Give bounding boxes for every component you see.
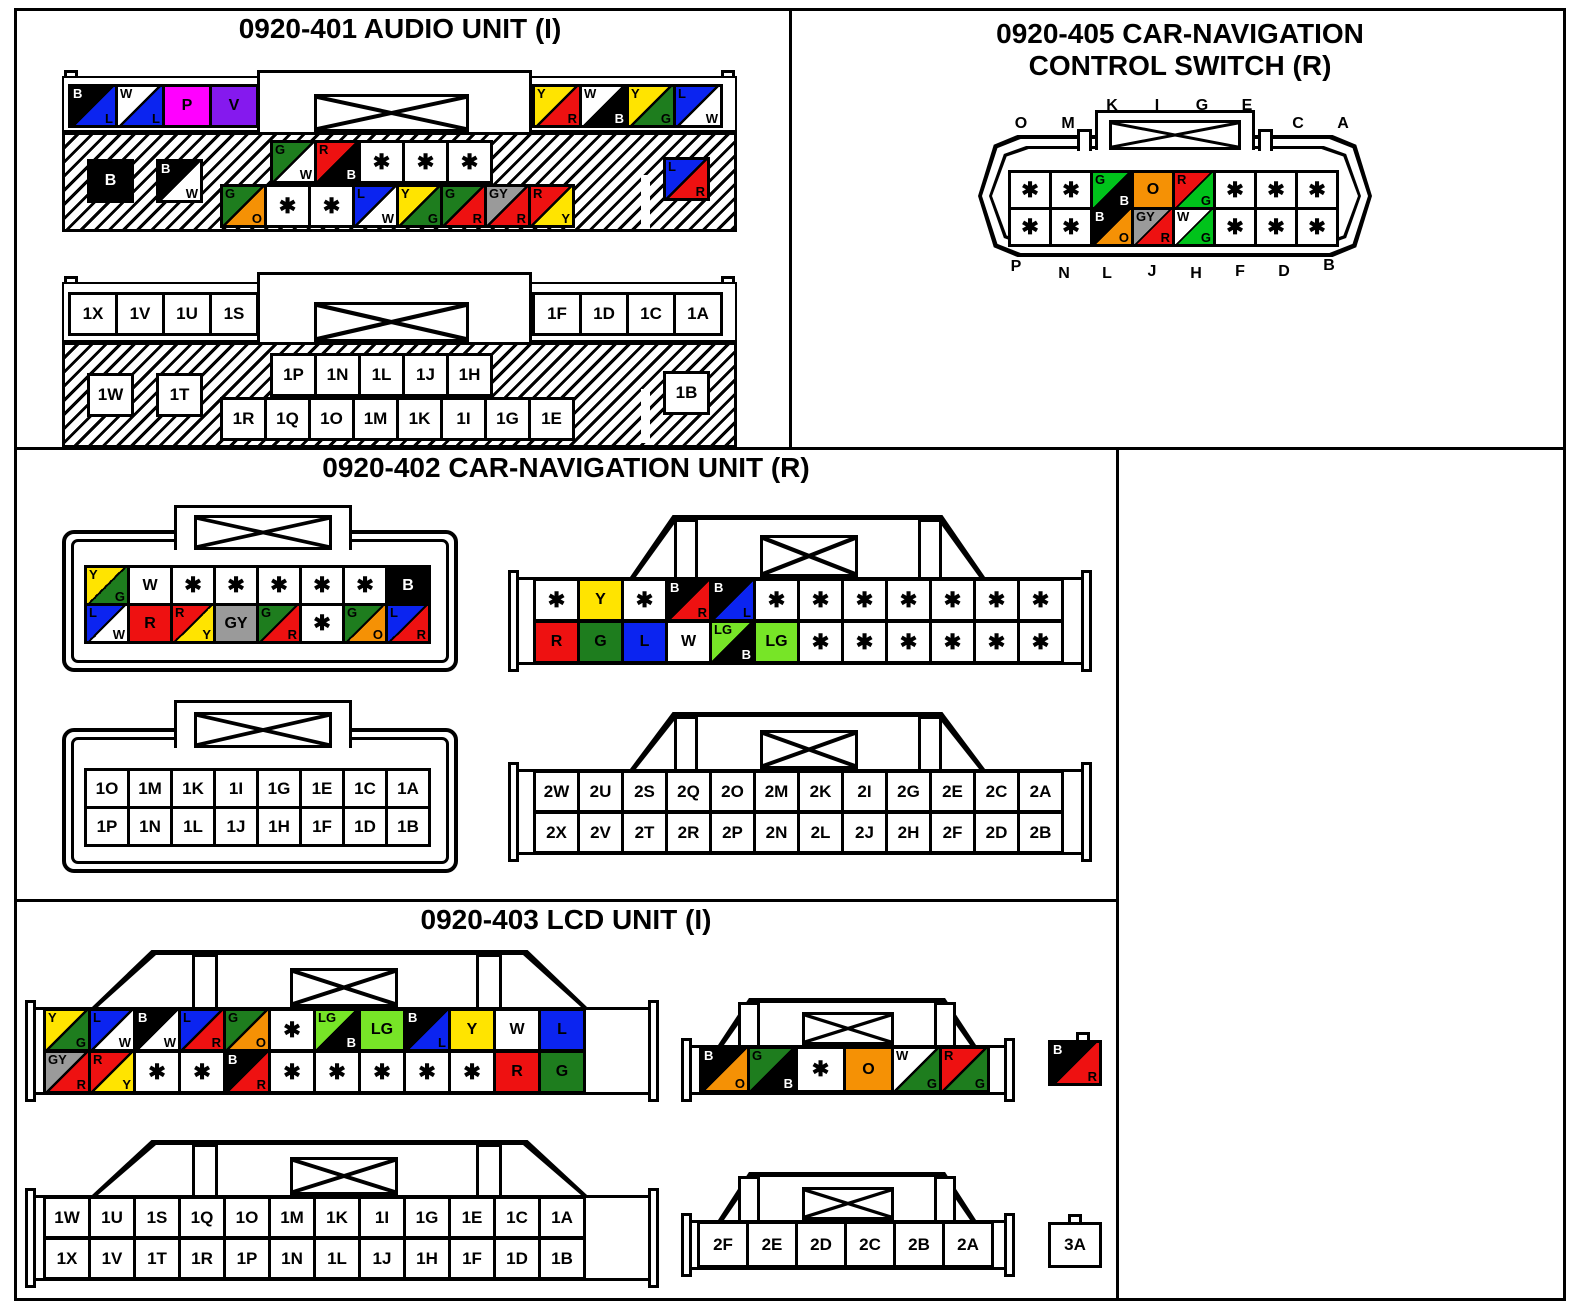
connector-endcap — [1004, 1038, 1015, 1102]
lcd-small-pin-connector: 2F2E2D2C2B2A — [688, 1172, 1008, 1272]
wire-color-code: LG — [714, 622, 732, 637]
wire-cell-g-r: GR — [256, 603, 302, 644]
pin-cell-1w: 1W — [43, 1196, 91, 1239]
wire-color-code: G — [1201, 230, 1211, 245]
wire-color-code: G — [225, 186, 235, 201]
spacer-slot — [641, 175, 650, 229]
carnav-right-pin-connector: 2W2U2S2Q2O2M2K2I2G2E2C2A 2X2V2T2R2P2N2L2… — [515, 712, 1085, 862]
wire-cell-b-r: BR — [223, 1050, 271, 1094]
wire-color-code: G — [428, 211, 438, 226]
wire-row: YGW✱✱✱✱✱B — [84, 565, 431, 606]
wire-color-code: GY — [48, 1052, 67, 1067]
wire-cell-b-w: BW — [133, 1008, 181, 1052]
pin-cell-2h: 2H — [885, 811, 932, 854]
pin-cell-1v: 1V — [115, 292, 165, 336]
wire-color-code: W — [164, 1035, 176, 1050]
panel-title-lcd-unit: 0920-403 LCD UNIT (I) — [166, 904, 966, 936]
wire-color-code: L — [678, 86, 686, 101]
pin-row: 1O1M1K1I1G1E1C1A — [84, 768, 431, 809]
wire-cell-w-g2: WG — [1172, 207, 1216, 247]
pin-cell-2b: 2B — [1017, 811, 1064, 854]
wire-cell-g-o: GO — [220, 184, 267, 228]
pin-cell-2l: 2L — [797, 811, 844, 854]
wire-cell-y-g: YG — [396, 184, 443, 228]
wire-cell-unused: ✱ — [358, 1050, 406, 1094]
wire-color-code: R — [93, 1052, 102, 1067]
wire-cell-w-l: WL — [115, 84, 165, 128]
wire-cell-unused: ✱ — [213, 565, 259, 606]
panel-title-control-switch-line2: CONTROL SWITCH (R) — [880, 50, 1480, 82]
pin-cell-2c: 2C — [973, 770, 1020, 813]
pin-cell-1x: 1X — [43, 1237, 91, 1280]
pin-letter-l: L — [1096, 265, 1118, 283]
pin-letter-j: J — [1141, 263, 1163, 281]
pin-cell-1s: 1S — [133, 1196, 181, 1239]
wire-cell-unused: ✱ — [1008, 170, 1052, 210]
wire-color-code: R — [696, 184, 705, 199]
wire-color-code: R — [212, 1035, 221, 1050]
pin-cell-1h: 1H — [446, 353, 493, 397]
wire-row: BOGB✱OWGRG — [699, 1046, 990, 1093]
pin-cell-1b: 1B — [538, 1237, 586, 1280]
wire-color-code: G — [115, 589, 125, 604]
wire-color-code: R — [175, 605, 184, 620]
connector-bridge — [630, 515, 985, 577]
wire-cell-y-g: YG — [43, 1008, 91, 1052]
wire-cell-o: O — [1131, 170, 1175, 210]
wire-color-code: R — [319, 142, 328, 157]
wire-color-code: W — [113, 627, 125, 642]
wire-color-code: G — [347, 605, 357, 620]
pin-cell-1j: 1J — [358, 1237, 406, 1280]
wire-cell-unused: ✱ — [1295, 170, 1339, 210]
wire-cell-b-o: BO — [1090, 207, 1134, 247]
wire-cell-r-y: RY — [528, 184, 575, 228]
connector-post — [192, 1144, 218, 1195]
pin-row: 2W2U2S2Q2O2M2K2I2G2E2C2A — [533, 770, 1064, 813]
keyway-cross-icon — [314, 94, 469, 132]
wire-row: GO✱✱LWYGGRGYRRY — [220, 184, 575, 228]
pin-cell-1e: 1E — [299, 768, 345, 809]
wire-color-code: L — [89, 605, 97, 620]
wire-cell-g-o: GO — [342, 603, 388, 644]
wire-color-code: Y — [202, 627, 211, 642]
connector-bridge — [92, 950, 587, 1007]
pin-cell-2e: 2E — [746, 1221, 798, 1268]
wire-color-code: B — [1120, 193, 1129, 208]
wire-cell-w: W — [665, 620, 712, 664]
wire-cell-y: Y — [577, 578, 624, 622]
pin-row: 1X1V1T1R1P1N1L1J1H1F1D1B — [43, 1237, 586, 1280]
wire-color-code: G — [228, 1010, 238, 1025]
keyway-cross-icon — [760, 730, 858, 769]
wire-color-code: B — [138, 1010, 147, 1025]
wire-cell-unused: ✱ — [446, 140, 493, 184]
pin-cell-1r: 1R — [220, 397, 267, 441]
wire-color-code: O — [1119, 230, 1129, 245]
wire-cell-unused: ✱ — [1295, 207, 1339, 247]
wire-color-code: R — [944, 1048, 953, 1063]
wire-row: RGLWLGBLG✱✱✱✱✱✱ — [533, 620, 1064, 664]
hatch-area: 1W1T 1P1N1L1J1H 1R1Q1O1M1K1I1G1E 1B — [62, 342, 737, 448]
wire-cell-b-l: BL — [68, 84, 118, 128]
wire-cell-r-g2: RG — [1172, 170, 1216, 210]
pin-cell-2n: 2N — [753, 811, 800, 854]
wire-color-code: B — [742, 647, 751, 662]
wire-cell-unused: ✱ — [402, 140, 449, 184]
pin-cell-2d: 2D — [973, 811, 1020, 854]
wire-color-code: R — [568, 111, 577, 126]
connector-post — [738, 1002, 760, 1045]
wire-color-code: G — [1201, 193, 1211, 208]
pin-cell-1w: 1W — [87, 373, 134, 417]
wire-color-code: B — [1053, 1042, 1062, 1057]
wire-cell-lg-b: LGB — [313, 1008, 361, 1052]
pin-cell-1c: 1C — [342, 768, 388, 809]
wire-cell-r: R — [533, 620, 580, 664]
wire-cell-unused: ✱ — [753, 578, 800, 622]
wire-cell-y-g: YG — [626, 84, 676, 128]
pin-cell-1k: 1K — [396, 397, 443, 441]
connector-post — [1077, 129, 1092, 151]
wire-color-code: R — [417, 627, 426, 642]
wire-color-code: Y — [401, 186, 410, 201]
panel-title-audio-unit: 0920-401 AUDIO UNIT (I) — [90, 13, 710, 45]
wire-color-code: G — [275, 142, 285, 157]
wire-color-code: O — [256, 1035, 266, 1050]
pin-cell-2f: 2F — [697, 1221, 749, 1268]
wire-color-code: R — [288, 627, 297, 642]
pin-cell-1r: 1R — [178, 1237, 226, 1280]
wire-color-code: R — [1161, 230, 1170, 245]
connector-post — [918, 716, 942, 769]
connector-bridge — [630, 712, 985, 769]
wire-cell-l-w: LW — [673, 84, 723, 128]
keyway-cross-icon — [290, 968, 398, 1007]
wire-color-code: L — [668, 159, 676, 174]
wire-cell-b: B — [385, 565, 431, 606]
wire-cell-g-b: GB — [747, 1046, 798, 1093]
wire-color-code: G — [76, 1035, 86, 1050]
keyway-cross-icon — [760, 535, 858, 577]
wire-cell-l-w: LW — [88, 1008, 136, 1052]
wire-row: LWRRYGYGR✱GOLR — [84, 603, 431, 644]
wire-color-code: B — [714, 580, 723, 595]
lcd-tiny-pin-connector: 3A — [1048, 1214, 1102, 1270]
pin-cell-1f: 1F — [299, 806, 345, 847]
pin-cell-1t: 1T — [133, 1237, 181, 1280]
wire-cell-unused: ✱ — [256, 565, 302, 606]
wire-color-code: G — [752, 1048, 762, 1063]
wire-cell-gy-r: GYR — [484, 184, 531, 228]
pin-cell-1c: 1C — [493, 1196, 541, 1239]
pin-cell-1t: 1T — [156, 373, 203, 417]
keyway-cross-icon — [1109, 120, 1241, 150]
wire-cell-unused: ✱ — [448, 1050, 496, 1094]
wire-cell-unused: ✱ — [841, 620, 888, 664]
wire-cell-unused: ✱ — [1008, 207, 1052, 247]
pin-cell-1i: 1I — [440, 397, 487, 441]
pin-letter-f: F — [1229, 263, 1251, 281]
wire-cell-unused: ✱ — [797, 620, 844, 664]
connector-post — [192, 954, 218, 1007]
pin-cell-1b: 1B — [663, 371, 710, 415]
wire-color-code: G — [261, 605, 271, 620]
pin-cell-1x: 1X — [68, 292, 118, 336]
pin-cell-2d: 2D — [795, 1221, 847, 1268]
panel-title-carnav-unit: 0920-402 CAR-NAVIGATION UNIT (R) — [166, 452, 966, 484]
wire-cell-unused: ✱ — [299, 603, 345, 644]
wire-color-code: Y — [48, 1010, 57, 1025]
wire-cell-o: O — [843, 1046, 894, 1093]
divider-carnav-lcd — [14, 899, 1119, 902]
connector-post — [738, 1176, 760, 1220]
pin-cell-1o: 1O — [84, 768, 130, 809]
audio-unit-wire-connector: BLWLPV YRWBYGLW BBW GWRB✱✱✱ GO✱✱LWYGGRGY… — [62, 70, 737, 235]
connector-endcap — [1004, 1213, 1015, 1277]
connector-bridge — [718, 998, 976, 1045]
pin-letter-o: O — [1010, 115, 1032, 133]
pin-cell-1h: 1H — [256, 806, 302, 847]
pin-cell-1u: 1U — [162, 292, 212, 336]
wire-color-code: W — [382, 211, 394, 226]
wire-cell-unused: ✱ — [268, 1008, 316, 1052]
wire-cell-lg: LG — [753, 620, 800, 664]
wire-color-code: L — [438, 1035, 446, 1050]
wire-cell-unused: ✱ — [1017, 578, 1064, 622]
wiring-diagram-sheet: 0920-401 AUDIO UNIT (I) BLWLPV YRWBYGLW … — [0, 0, 1580, 1314]
wire-cell-unused: ✱ — [973, 578, 1020, 622]
connector-post — [476, 1144, 502, 1195]
pin-cell-2b: 2B — [893, 1221, 945, 1268]
wire-color-code: O — [735, 1076, 745, 1091]
wire-color-code: B — [670, 580, 679, 595]
pin-row: 1F1D1C1A — [532, 292, 723, 336]
wire-color-code: Y — [122, 1077, 131, 1092]
wire-color-code: L — [105, 111, 113, 126]
pin-cell-1e: 1E — [528, 397, 575, 441]
pin-row: 1P1N1L1J1H1F1D1B — [84, 806, 431, 847]
pin-cell-3a: 3A — [1048, 1222, 1102, 1268]
pin-cell-1a: 1A — [538, 1196, 586, 1239]
wire-cell-unused: ✱ — [1017, 620, 1064, 664]
connector-body: 2F2E2D2C2B2A — [688, 1220, 1008, 1270]
wire-color-code: B — [408, 1010, 417, 1025]
wire-cell-w-g: WG — [891, 1046, 942, 1093]
connector-body: ✱Y✱BRBL✱✱✱✱✱✱✱ RGLWLGBLG✱✱✱✱✱✱ — [515, 577, 1085, 665]
wire-cell-p: P — [162, 84, 212, 128]
wire-color-code: W — [584, 86, 596, 101]
pin-cell-1a: 1A — [673, 292, 723, 336]
wire-color-code: Y — [631, 86, 640, 101]
wire-cell-unused: ✱ — [170, 565, 216, 606]
wire-cell-unused: ✱ — [885, 620, 932, 664]
keyway-cross-icon — [194, 712, 332, 748]
pin-cell-2a: 2A — [942, 1221, 994, 1268]
wire-color-code: R — [77, 1077, 86, 1092]
wire-cell-g-r: GR — [440, 184, 487, 228]
wire-cell-g-o: GO — [223, 1008, 271, 1052]
wire-color-code: LG — [318, 1010, 336, 1025]
pin-cell-1g: 1G — [256, 768, 302, 809]
carnav-right-wire-connector: ✱Y✱BRBL✱✱✱✱✱✱✱ RGLWLGBLG✱✱✱✱✱✱ — [515, 515, 1085, 667]
wire-color-code: GY — [1136, 209, 1155, 224]
wire-cell-r-y: RY — [170, 603, 216, 644]
wire-cell-l-w: LW — [84, 603, 130, 644]
pin-row: 1X1V1U1S — [68, 292, 259, 336]
pin-cell-1j: 1J — [213, 806, 259, 847]
wire-color-code: L — [357, 186, 365, 201]
pin-cell-1p: 1P — [270, 353, 317, 397]
connector-post — [918, 519, 942, 577]
wire-cell-l-w: LW — [352, 184, 399, 228]
wire-cell-b-l: BL — [709, 578, 756, 622]
wire-cell-unused: ✱ — [313, 1050, 361, 1094]
wire-cell-g: G — [538, 1050, 586, 1094]
keyway-cross-icon — [194, 515, 332, 550]
pin-cell-2p: 2P — [709, 811, 756, 854]
pin-letter-a: A — [1332, 115, 1354, 133]
wire-row: ✱✱BOGYRWG✱✱✱ — [1008, 207, 1339, 247]
wire-cell-unused: ✱ — [533, 578, 580, 622]
pin-cell-1g: 1G — [484, 397, 531, 441]
wire-cell-b-r: BR — [665, 578, 712, 622]
carnav-left-pin-connector: 1O1M1K1I1G1E1C1A 1P1N1L1J1H1F1D1B — [62, 700, 458, 875]
pin-cell-1l: 1L — [358, 353, 405, 397]
hatch-area: BBW GWRB✱✱✱ GO✱✱LWYGGRGYRRY LR — [62, 132, 737, 232]
pin-cell-1u: 1U — [88, 1196, 136, 1239]
pin-cell-1o: 1O — [223, 1196, 271, 1239]
pin-cell-2e: 2E — [929, 770, 976, 813]
wire-cell-unused: ✱ — [1254, 207, 1298, 247]
wire-color-code: B — [228, 1052, 237, 1067]
wire-cell-b: B — [87, 159, 134, 203]
wire-cell-b-r: BR — [1048, 1040, 1102, 1086]
wire-cell-w: W — [127, 565, 173, 606]
wire-color-code: R — [1088, 1069, 1097, 1084]
wire-row: BBW — [87, 159, 203, 203]
wire-color-code: L — [183, 1010, 191, 1025]
wire-cell-gy-r: GYR — [1131, 207, 1175, 247]
wire-color-code: B — [704, 1048, 713, 1063]
wire-cell-g: G — [577, 620, 624, 664]
audio-unit-pin-connector: 1X1V1U1S 1F1D1C1A 1W1T 1P1N1L1J1H 1R1Q1O… — [62, 272, 737, 454]
wire-color-code: W — [706, 111, 718, 126]
connector-endcap — [648, 1000, 659, 1102]
wire-color-code: W — [896, 1048, 908, 1063]
wire-cell-g2-b: GB — [1090, 170, 1134, 210]
pin-cell-2q: 2Q — [665, 770, 712, 813]
pin-letter-c: C — [1287, 115, 1309, 133]
connector-body: YGLWBWLRGO✱LGBLGBLYWL GYRRY✱✱BR✱✱✱✱✱RG — [32, 1007, 652, 1095]
pin-row: 1W1T — [87, 373, 203, 417]
pin-cell-2j: 2J — [841, 811, 888, 854]
keyway-cross-icon — [802, 1187, 894, 1220]
wire-cell-unused: ✱ — [621, 578, 668, 622]
wire-cell-unused: ✱ — [342, 565, 388, 606]
pin-cell-1h: 1H — [403, 1237, 451, 1280]
pin-cell-1e: 1E — [448, 1196, 496, 1239]
control-switch-connector: O M K I G E C A ✱✱GBORG✱✱✱ ✱✱BOGYRWG✱✱✱ … — [975, 95, 1375, 295]
connector-endcap — [1081, 762, 1092, 862]
pin-cell-2v: 2V — [577, 811, 624, 854]
pin-cell-1a: 1A — [385, 768, 431, 809]
wire-color-code: G — [927, 1076, 937, 1091]
wire-cell-r-b: RB — [314, 140, 361, 184]
wire-cell-unused: ✱ — [358, 140, 405, 184]
wire-color-code: B — [347, 1035, 356, 1050]
wire-color-code: B — [161, 161, 170, 176]
connector-post — [934, 1176, 956, 1220]
carnav-left-wire-connector: YGW✱✱✱✱✱B LWRRYGYGR✱GOLR — [62, 505, 458, 675]
wire-cell-r: R — [127, 603, 173, 644]
lcd-tiny-wire-connector: BR — [1048, 1032, 1102, 1088]
wire-cell-r-g: RG — [939, 1046, 990, 1093]
wire-cell-unused: ✱ — [1049, 170, 1093, 210]
pin-letter-d: D — [1273, 263, 1295, 281]
connector-body: BOGB✱OWGRG — [688, 1045, 1008, 1095]
wire-cell-b-w: BW — [156, 159, 203, 203]
pin-cell-1n: 1N — [127, 806, 173, 847]
wire-cell-y-r: YR — [532, 84, 582, 128]
connector-post — [674, 519, 698, 577]
pin-row: 3A — [1048, 1222, 1102, 1268]
wire-cell-y: Y — [448, 1008, 496, 1052]
pin-cell-1q: 1Q — [264, 397, 311, 441]
wire-color-code: B — [1095, 209, 1104, 224]
wire-color-code: R — [1177, 172, 1186, 187]
wire-cell-l-r: LR — [178, 1008, 226, 1052]
wire-cell-w: W — [493, 1008, 541, 1052]
connector-bridge — [718, 1172, 976, 1220]
wire-color-code: L — [93, 1010, 101, 1025]
connector-post — [674, 716, 698, 769]
pin-cell-1m: 1M — [268, 1196, 316, 1239]
lcd-small-wire-connector: BOGB✱OWGRG — [688, 998, 1008, 1098]
wire-color-code: O — [373, 627, 383, 642]
wire-color-code: G — [661, 111, 671, 126]
pin-letter-n: N — [1053, 265, 1075, 283]
pin-cell-1i: 1I — [358, 1196, 406, 1239]
pin-cell-1f: 1F — [532, 292, 582, 336]
pin-row: 2X2V2T2R2P2N2L2J2H2F2D2B — [533, 811, 1064, 854]
wire-color-code: Y — [561, 211, 570, 226]
wire-color-code: W — [1177, 209, 1189, 224]
pin-cell-1k: 1K — [313, 1196, 361, 1239]
connector-post — [476, 954, 502, 1007]
wire-color-code: W — [119, 1035, 131, 1050]
wire-cell-l: L — [621, 620, 668, 664]
pin-cell-1g: 1G — [403, 1196, 451, 1239]
connector-bridge — [92, 1140, 587, 1195]
pin-cell-2s: 2S — [621, 770, 668, 813]
connector-endcap — [681, 1213, 692, 1277]
wire-cell-unused: ✱ — [268, 1050, 316, 1094]
wire-cell-unused: ✱ — [929, 620, 976, 664]
wire-cell-unused: ✱ — [929, 578, 976, 622]
pin-cell-1s: 1S — [209, 292, 259, 336]
wire-row: GWRB✱✱✱ — [270, 140, 493, 184]
pin-letter-h: H — [1185, 265, 1207, 283]
pin-cell-1c: 1C — [626, 292, 676, 336]
connector-endcap — [681, 1038, 692, 1102]
wire-row: BLWLPV — [68, 84, 259, 128]
pin-cell-1d: 1D — [342, 806, 388, 847]
pin-cell-1v: 1V — [88, 1237, 136, 1280]
pin-cell-2t: 2T — [621, 811, 668, 854]
pin-cell-1q: 1Q — [178, 1196, 226, 1239]
wire-cell-lg: LG — [358, 1008, 406, 1052]
